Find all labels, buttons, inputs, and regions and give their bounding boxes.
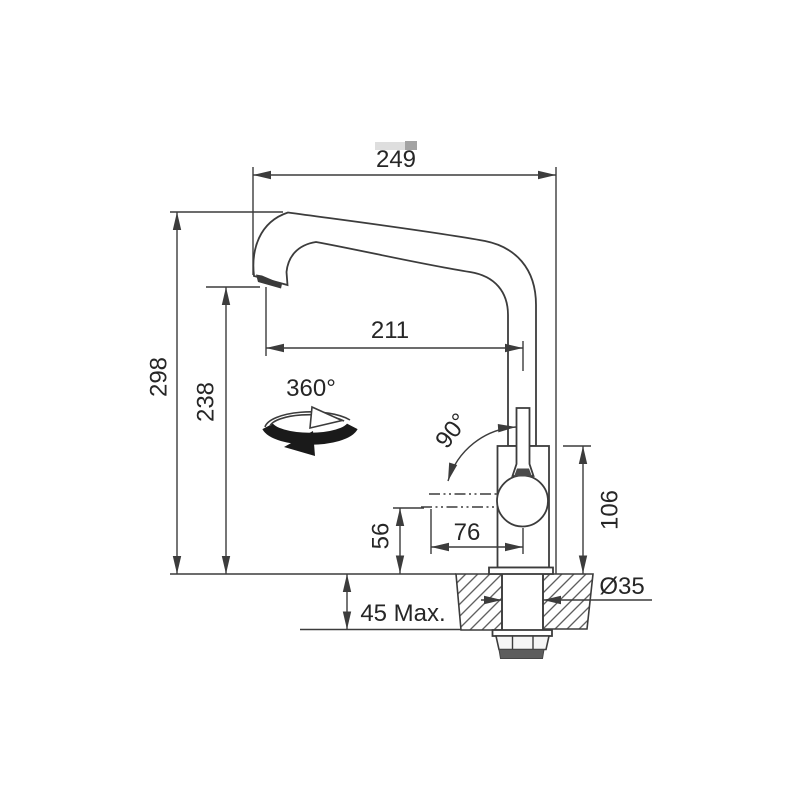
dim-106: 106 [583, 446, 624, 574]
dim-298: 298 [146, 212, 178, 574]
dim-label-106: 106 [597, 490, 624, 530]
handle-lever [513, 408, 534, 476]
faucet-dimension-drawing-page: 249 298 238 211 106 56 76 45 Max. Ø35 [0, 0, 800, 800]
dim-238: 238 [193, 287, 227, 574]
dim-211: 211 [266, 317, 523, 371]
dim-56: 56 [368, 508, 401, 574]
dim-label-45-max: 45 Max. [360, 600, 445, 627]
dim-label-56: 56 [368, 523, 395, 550]
rotation-360-icon [265, 407, 352, 456]
dim-45-max: 45 Max. [347, 574, 446, 630]
countertop-section [456, 574, 593, 630]
dim-label-76: 76 [454, 519, 481, 546]
cartridge-detail [514, 469, 532, 477]
mounting-nut [496, 636, 549, 650]
dim-label-360: 360° [286, 375, 336, 402]
washer [493, 630, 553, 636]
dim-label-249: 249 [376, 146, 416, 173]
faucet-dimension-drawing: 249 298 238 211 106 56 76 45 Max. Ø35 [0, 0, 800, 800]
swivel-360: 360° [265, 375, 352, 456]
dim-label-90: 90° [430, 408, 474, 453]
dim-label-hole-diameter: Ø35 [599, 573, 644, 600]
dim-label-298: 298 [146, 357, 173, 397]
dim-249: 249 [253, 146, 556, 175]
dim-label-211: 211 [371, 317, 409, 344]
gasket [499, 650, 544, 659]
countertop-right [543, 574, 593, 629]
swivel-ball [497, 476, 548, 527]
dim-label-238: 238 [193, 382, 220, 422]
base-plate [489, 568, 553, 575]
countertop-left [456, 574, 502, 630]
